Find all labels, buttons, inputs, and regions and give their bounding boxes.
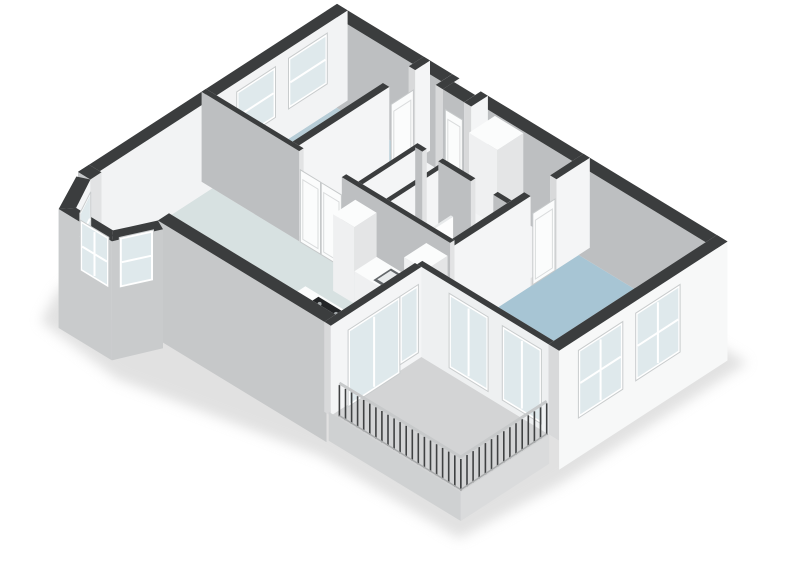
floorplan-3d-canvas	[0, 0, 800, 566]
exterior-wall-east-end-face	[549, 344, 560, 441]
living-balcony-wall-end-face	[324, 322, 330, 416]
kitchen-tall-cabinet-front-face	[333, 214, 354, 303]
balcony-sidelight-glass	[402, 288, 417, 361]
floorplan-image	[0, 0, 800, 566]
hall-double-door-left	[300, 170, 320, 254]
bedroom-door	[533, 199, 555, 285]
